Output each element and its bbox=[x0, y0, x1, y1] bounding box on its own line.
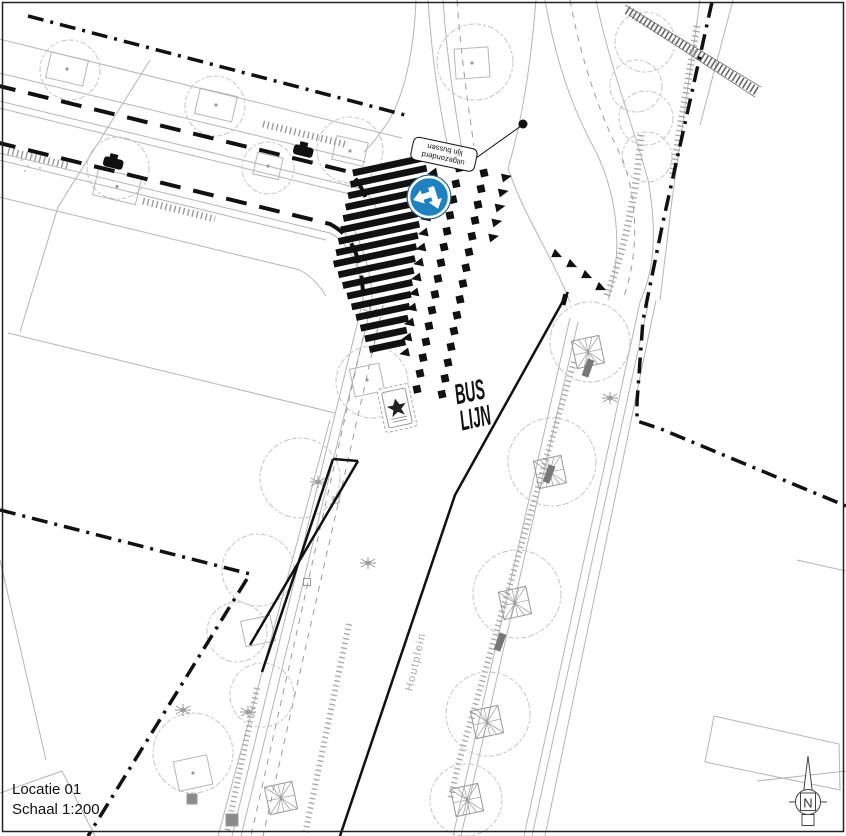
gravel-dot bbox=[24, 170, 26, 172]
north-letter: N bbox=[803, 796, 812, 811]
tree-canopy bbox=[153, 713, 233, 793]
sign-post-mark bbox=[561, 294, 569, 306]
solid-edge-lines bbox=[250, 292, 568, 836]
lamp-icon bbox=[602, 392, 618, 404]
give-way-tooth bbox=[495, 202, 507, 213]
site-plan-drawing: N bbox=[0, 0, 846, 836]
bus-lane-edge-line bbox=[340, 292, 568, 836]
lamp-icon bbox=[175, 704, 191, 716]
cycle-path-dashed-lines bbox=[251, 0, 635, 836]
tree-grate bbox=[498, 586, 531, 619]
planter-dot bbox=[214, 103, 217, 106]
block-mark bbox=[418, 353, 427, 362]
site-plan-page: N Locatie 01 Schaal 1:200 Houtplein uitg… bbox=[0, 0, 846, 836]
drawing-border bbox=[3, 3, 844, 832]
planter-dot bbox=[65, 67, 68, 70]
tree-canopy bbox=[610, 60, 662, 112]
lamp-icon bbox=[360, 557, 376, 569]
block-mark bbox=[451, 179, 460, 188]
tree-grate bbox=[470, 705, 503, 738]
utility-box bbox=[226, 814, 238, 826]
gravel-dot bbox=[21, 159, 23, 161]
block-mark bbox=[430, 290, 439, 299]
property-boundary-dashdot bbox=[0, 2, 846, 836]
give-way-tooth bbox=[551, 249, 564, 261]
planter-dot bbox=[470, 61, 473, 64]
block-mark bbox=[421, 337, 430, 346]
location-label: Locatie 01 bbox=[12, 780, 81, 800]
gravel-dot bbox=[34, 160, 36, 162]
block-mark bbox=[461, 263, 470, 272]
block-mark bbox=[443, 358, 452, 367]
tree-grate bbox=[264, 781, 297, 814]
give-way-tooth bbox=[498, 187, 510, 198]
give-way-tooth bbox=[581, 270, 594, 282]
taper-line-b bbox=[250, 461, 358, 645]
scale-label: Schaal 1:200 bbox=[12, 800, 100, 820]
gravel-dot bbox=[27, 165, 29, 167]
block-mark bbox=[442, 227, 451, 236]
tree-canopy bbox=[619, 91, 673, 145]
block-mark bbox=[445, 211, 454, 220]
curb-and-parcel-lines bbox=[0, 0, 846, 836]
planter-dot bbox=[191, 771, 194, 774]
utility-box bbox=[187, 794, 197, 804]
block-mark bbox=[440, 374, 449, 383]
block-mark bbox=[476, 184, 485, 193]
block-mark bbox=[415, 369, 424, 378]
tree-canopies bbox=[40, 12, 675, 836]
platform-bar bbox=[582, 358, 595, 377]
planter-dot bbox=[365, 378, 368, 381]
give-way-tooth bbox=[566, 259, 579, 271]
tree-canopy bbox=[242, 142, 294, 194]
block-mark bbox=[455, 295, 464, 304]
give-way-tooth bbox=[398, 348, 410, 359]
planter-dot bbox=[348, 149, 351, 152]
block-mark bbox=[473, 200, 482, 209]
block-mark bbox=[439, 242, 448, 251]
give-way-tooth bbox=[595, 282, 608, 294]
utility-box bbox=[304, 579, 311, 586]
tree-grates bbox=[264, 335, 604, 816]
tree-canopy bbox=[40, 40, 100, 100]
planter-dot bbox=[115, 185, 118, 188]
tree-canopy bbox=[446, 672, 530, 756]
block-mark bbox=[467, 232, 476, 241]
block-mark bbox=[458, 279, 467, 288]
block-mark bbox=[437, 390, 446, 399]
block-mark bbox=[427, 306, 436, 315]
lamp-symbols bbox=[175, 307, 618, 718]
give-way-tooth bbox=[491, 217, 503, 228]
gravel-dot bbox=[31, 155, 33, 157]
block-mark bbox=[464, 247, 473, 256]
north-arrow-icon: N bbox=[789, 756, 827, 826]
tree-canopy bbox=[260, 438, 340, 518]
give-way-teeth-right bbox=[488, 172, 608, 295]
block-mark bbox=[433, 274, 442, 283]
block-mark bbox=[452, 311, 461, 320]
street-furniture bbox=[21, 155, 594, 826]
give-way-tooth bbox=[417, 228, 429, 239]
parked-vehicle-symbols bbox=[102, 140, 315, 170]
block-mark bbox=[479, 168, 488, 177]
emblem-plaque bbox=[377, 383, 417, 433]
block-mark bbox=[412, 385, 421, 394]
block-mark bbox=[424, 321, 433, 330]
block-mark bbox=[446, 342, 455, 351]
mandatory-direction-sign bbox=[407, 175, 451, 219]
block-mark bbox=[470, 216, 479, 225]
block-mark bbox=[449, 326, 458, 335]
block-mark bbox=[436, 258, 445, 267]
zebra-bar bbox=[369, 339, 406, 353]
annotation-dot bbox=[519, 120, 528, 129]
planter-dot bbox=[266, 164, 269, 167]
gravel-dot bbox=[39, 167, 41, 169]
give-way-tooth bbox=[488, 232, 500, 243]
